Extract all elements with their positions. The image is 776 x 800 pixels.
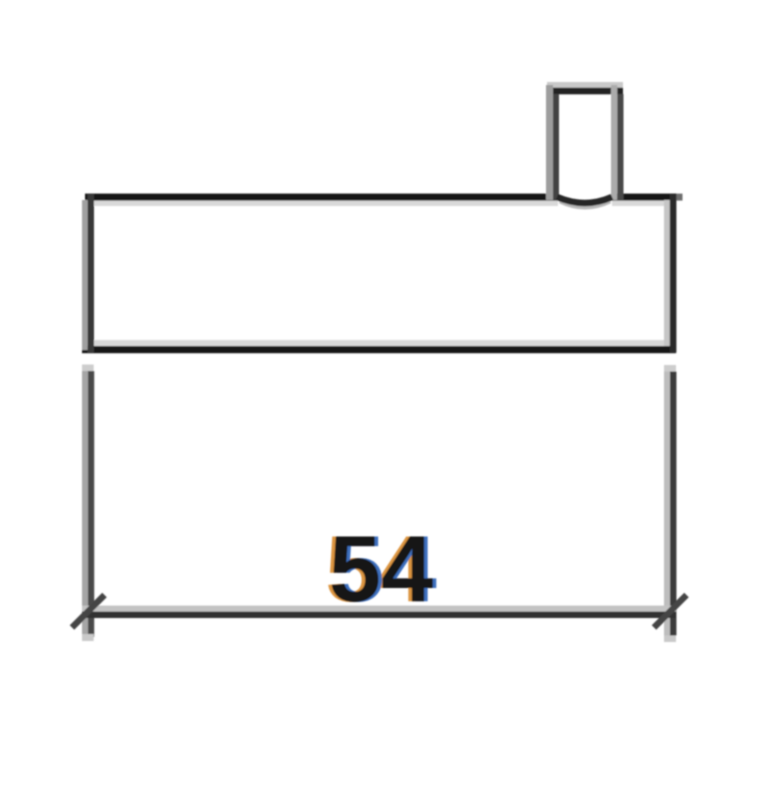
svg-text:54: 54 <box>329 516 434 621</box>
